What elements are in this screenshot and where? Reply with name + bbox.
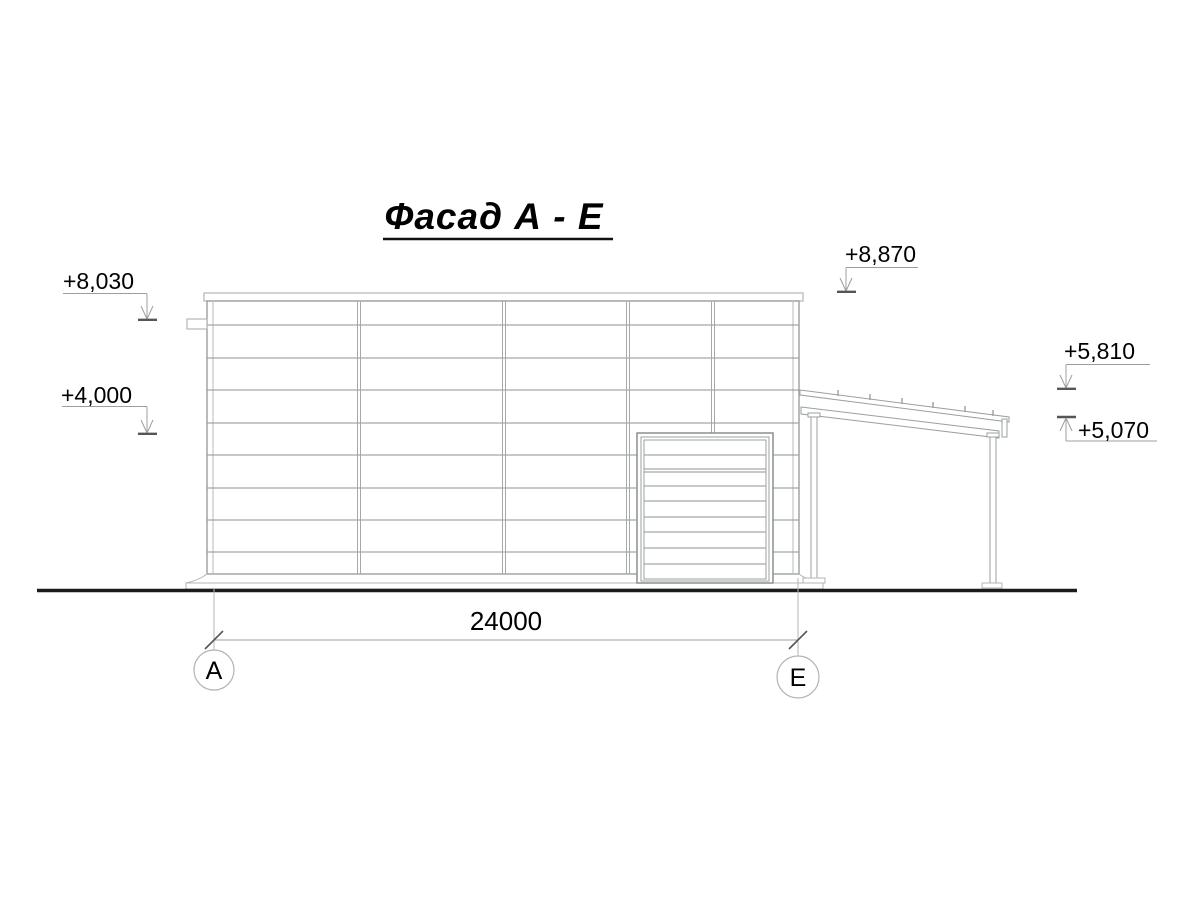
elevation-arrow-icon xyxy=(1060,418,1066,431)
elevation-mark-8030: +8,030 xyxy=(63,268,157,320)
parapet-cap xyxy=(204,293,803,301)
page-title: Фасад А - Е xyxy=(384,196,603,237)
dimension-value: 24000 xyxy=(470,606,542,636)
right-post-capital xyxy=(987,433,999,437)
elevation-arrow-icon xyxy=(141,306,147,319)
drawing-sheet: Фасад А - Е xyxy=(0,0,1200,900)
left-post-base xyxy=(803,578,825,583)
axis-label-a: А xyxy=(206,657,223,685)
canopy-right-post xyxy=(990,437,996,583)
elevation-label: +4,000 xyxy=(61,382,132,408)
canopy-left-post xyxy=(811,417,817,583)
elevation-mark-8870: +8,870 xyxy=(837,241,918,292)
plinth-left-flare xyxy=(186,574,207,583)
axis-bubble-e: Е xyxy=(777,656,819,698)
elevation-label: +8,030 xyxy=(63,268,134,294)
left-post-capital xyxy=(808,413,820,417)
sectional-door xyxy=(637,433,773,583)
canopy-tab xyxy=(187,319,207,329)
lean-to-canopy xyxy=(800,390,1009,588)
elevation-label: +8,870 xyxy=(845,241,916,267)
elevation-mark-4000: +4,000 xyxy=(61,382,157,434)
elevation-label: +5,070 xyxy=(1078,417,1149,443)
right-post-base xyxy=(982,583,1002,588)
elevation-mark-5070: +5,070 xyxy=(1057,417,1157,443)
facade-elevation-drawing: Фасад А - Е xyxy=(0,0,1200,900)
elevation-arrow-icon xyxy=(1060,375,1066,388)
elevation-mark-5810: +5,810 xyxy=(1057,338,1150,389)
axis-bubble-a: А xyxy=(194,650,234,690)
drawing-title: Фасад А - Е xyxy=(383,196,613,239)
elevation-arrow-icon xyxy=(141,420,147,433)
canopy-fascia-end xyxy=(1002,419,1007,437)
main-building xyxy=(186,293,823,589)
axis-label-e: Е xyxy=(790,664,807,692)
elevation-label: +5,810 xyxy=(1064,338,1135,364)
door-leaf xyxy=(644,440,766,579)
elevation-arrow-icon xyxy=(840,278,846,291)
